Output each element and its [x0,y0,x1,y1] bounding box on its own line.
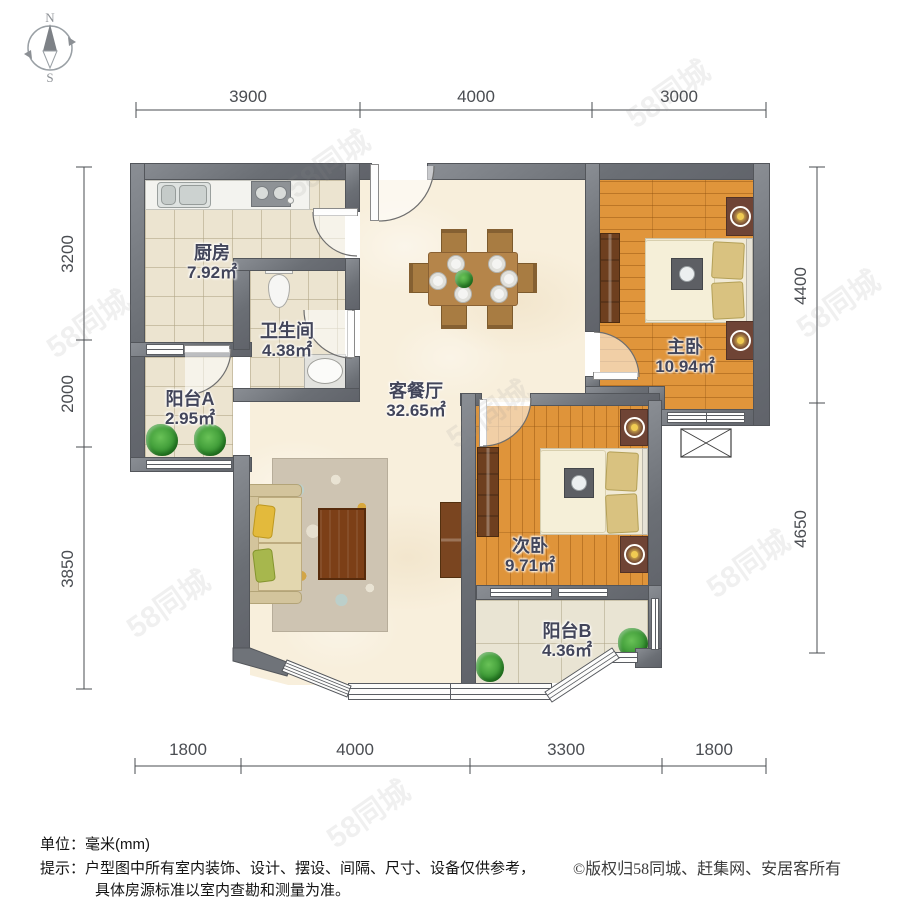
master-ceiling-light [726,197,754,236]
second-bedroom-label: 次卧 9.71㎡ [475,536,585,575]
watermark: 58同城 [116,557,218,647]
bathroom-name: 卫生间 [232,321,342,341]
balcony-a-side-window [146,344,184,355]
second-bottom-window [558,588,608,597]
kitchen-name: 厨房 [157,243,267,263]
second-ceiling-light [620,536,648,573]
balcony-a-label: 阳台A 2.95㎡ [135,389,245,428]
dim-top-3: 3000 [639,87,719,107]
kitchen-door-leaf [313,208,358,216]
second-bed-pillow [605,493,639,534]
dim-bottom-3: 3300 [526,740,606,760]
dim-left-1: 3200 [58,214,78,294]
dining-chair [487,305,513,329]
kitchen-sink-basin-large [179,185,207,205]
compass-south-label: S [46,70,53,85]
balcony-b-name: 阳台B [512,621,622,641]
kitchen-sink-basin-small [161,185,176,205]
stove-knob [287,197,294,204]
sofa-pillow-green [252,548,276,583]
master-bed-pillow [711,241,745,280]
second-bed-pillow [605,451,639,492]
living-bottom-window [348,683,552,700]
balcony-b-area: 4.36㎡ [512,641,622,660]
second-right-wall [648,400,662,600]
master-left-wall-a [585,163,600,332]
balcony-b-corner-block [635,648,662,668]
tray-plate [571,475,587,491]
master-bedroom-name: 主卧 [630,337,740,357]
dining-chair [517,263,537,293]
kitchen-area: 7.92㎡ [157,263,267,282]
unit-note: 单位：毫米(mm) [40,833,150,854]
living-dining-area: 32.65㎡ [361,401,471,420]
stove-burner-left [255,186,269,200]
dim-bottom-2: 4000 [315,740,395,760]
ac-unit-box [681,429,731,457]
bathroom-bottom-wall [233,388,360,402]
tip-line-1: 提示：户型图中所有室内装饰、设计、摆设、间隔、尺寸、设备仅供参考， [40,857,535,878]
watermark: 58同城 [316,767,418,857]
second-bed-tray [564,468,594,498]
second-bedroom-name: 次卧 [475,536,585,556]
second-bottom-window [490,588,552,597]
second-ceiling-light [620,409,648,446]
master-bed-headboard [746,238,753,323]
plate [490,285,508,303]
copyright-notice: ©版权归58同城、赶集网、安居客所有 [573,855,841,879]
balcony-b-plant [476,652,504,682]
floorplan-canvas: N S 3900 4000 3000 3200 2000 3850 4400 4… [0,0,900,900]
master-bed-pillow [711,281,745,320]
watermark: 58同城 [696,517,798,607]
plate [429,272,447,290]
master-bedroom-label: 主卧 10.94㎡ [630,337,740,376]
second-wardrobe [477,447,499,537]
table-centerpiece-plant [455,270,473,288]
dim-right-2: 4650 [791,489,811,569]
dining-chair [441,229,467,253]
compass-north-label: N [45,10,55,25]
second-bedroom-area: 9.71㎡ [475,556,585,575]
exterior-wall-right [753,163,770,426]
coffee-table [318,508,366,580]
bath-sink-basin [307,358,343,384]
dim-top-1: 3900 [208,87,288,107]
balcony-a-door-leaf [184,345,230,353]
second-door-leaf [479,399,487,447]
tray-plate [679,266,695,282]
exterior-wall-left-lower [233,455,250,655]
living-dining-name: 客餐厅 [361,381,471,401]
watermark: 58同城 [36,277,138,367]
kitchen-label: 厨房 7.92㎡ [157,243,267,282]
second-top-wall-b [530,393,660,406]
entrance-door-leaf [370,164,379,221]
dim-top-2: 4000 [436,87,516,107]
kitchen-right-wall-a [345,163,360,212]
second-left-wall [461,393,476,685]
bathroom-area: 4.38㎡ [232,341,342,360]
balcony-a-bottom-window [146,460,232,469]
balcony-b-right-window [651,598,659,650]
dining-chair [409,263,429,293]
dim-left-2: 2000 [58,354,78,434]
bathroom-door-leaf [347,310,355,358]
balcony-a-plant [194,424,226,456]
tip-line-2: 具体房源标准以室内查勘和测量为准。 [95,879,350,900]
dim-bottom-1: 1800 [148,740,228,760]
living-dining-label: 客餐厅 32.65㎡ [361,381,471,420]
sofa-pillow-yellow [252,504,276,539]
master-bedroom-area: 10.94㎡ [630,357,740,376]
plate [488,255,506,273]
exterior-wall-top-left [130,163,372,180]
master-bottom-window [667,412,745,423]
balcony-a-area: 2.95㎡ [135,409,245,428]
kitchen-right-wall-b [345,258,360,310]
dining-chair [487,229,513,253]
dim-left-3: 3850 [58,529,78,609]
sofa-arm-top [246,484,302,497]
balcony-a-plant [146,424,178,456]
compass-icon: N S [14,6,86,88]
dim-right-1: 4400 [791,246,811,326]
sofa-arm-bottom [246,591,302,604]
master-wardrobe [600,233,620,323]
stove-burner-right [273,186,287,200]
dim-bottom-4: 1800 [674,740,754,760]
balcony-b-label: 阳台B 4.36㎡ [512,621,622,660]
dining-chair [441,305,467,329]
tv-cabinet [440,502,462,578]
master-bed-tray [671,258,703,290]
balcony-a-name: 阳台A [135,389,245,409]
bathroom-label: 卫生间 4.38㎡ [232,321,342,360]
